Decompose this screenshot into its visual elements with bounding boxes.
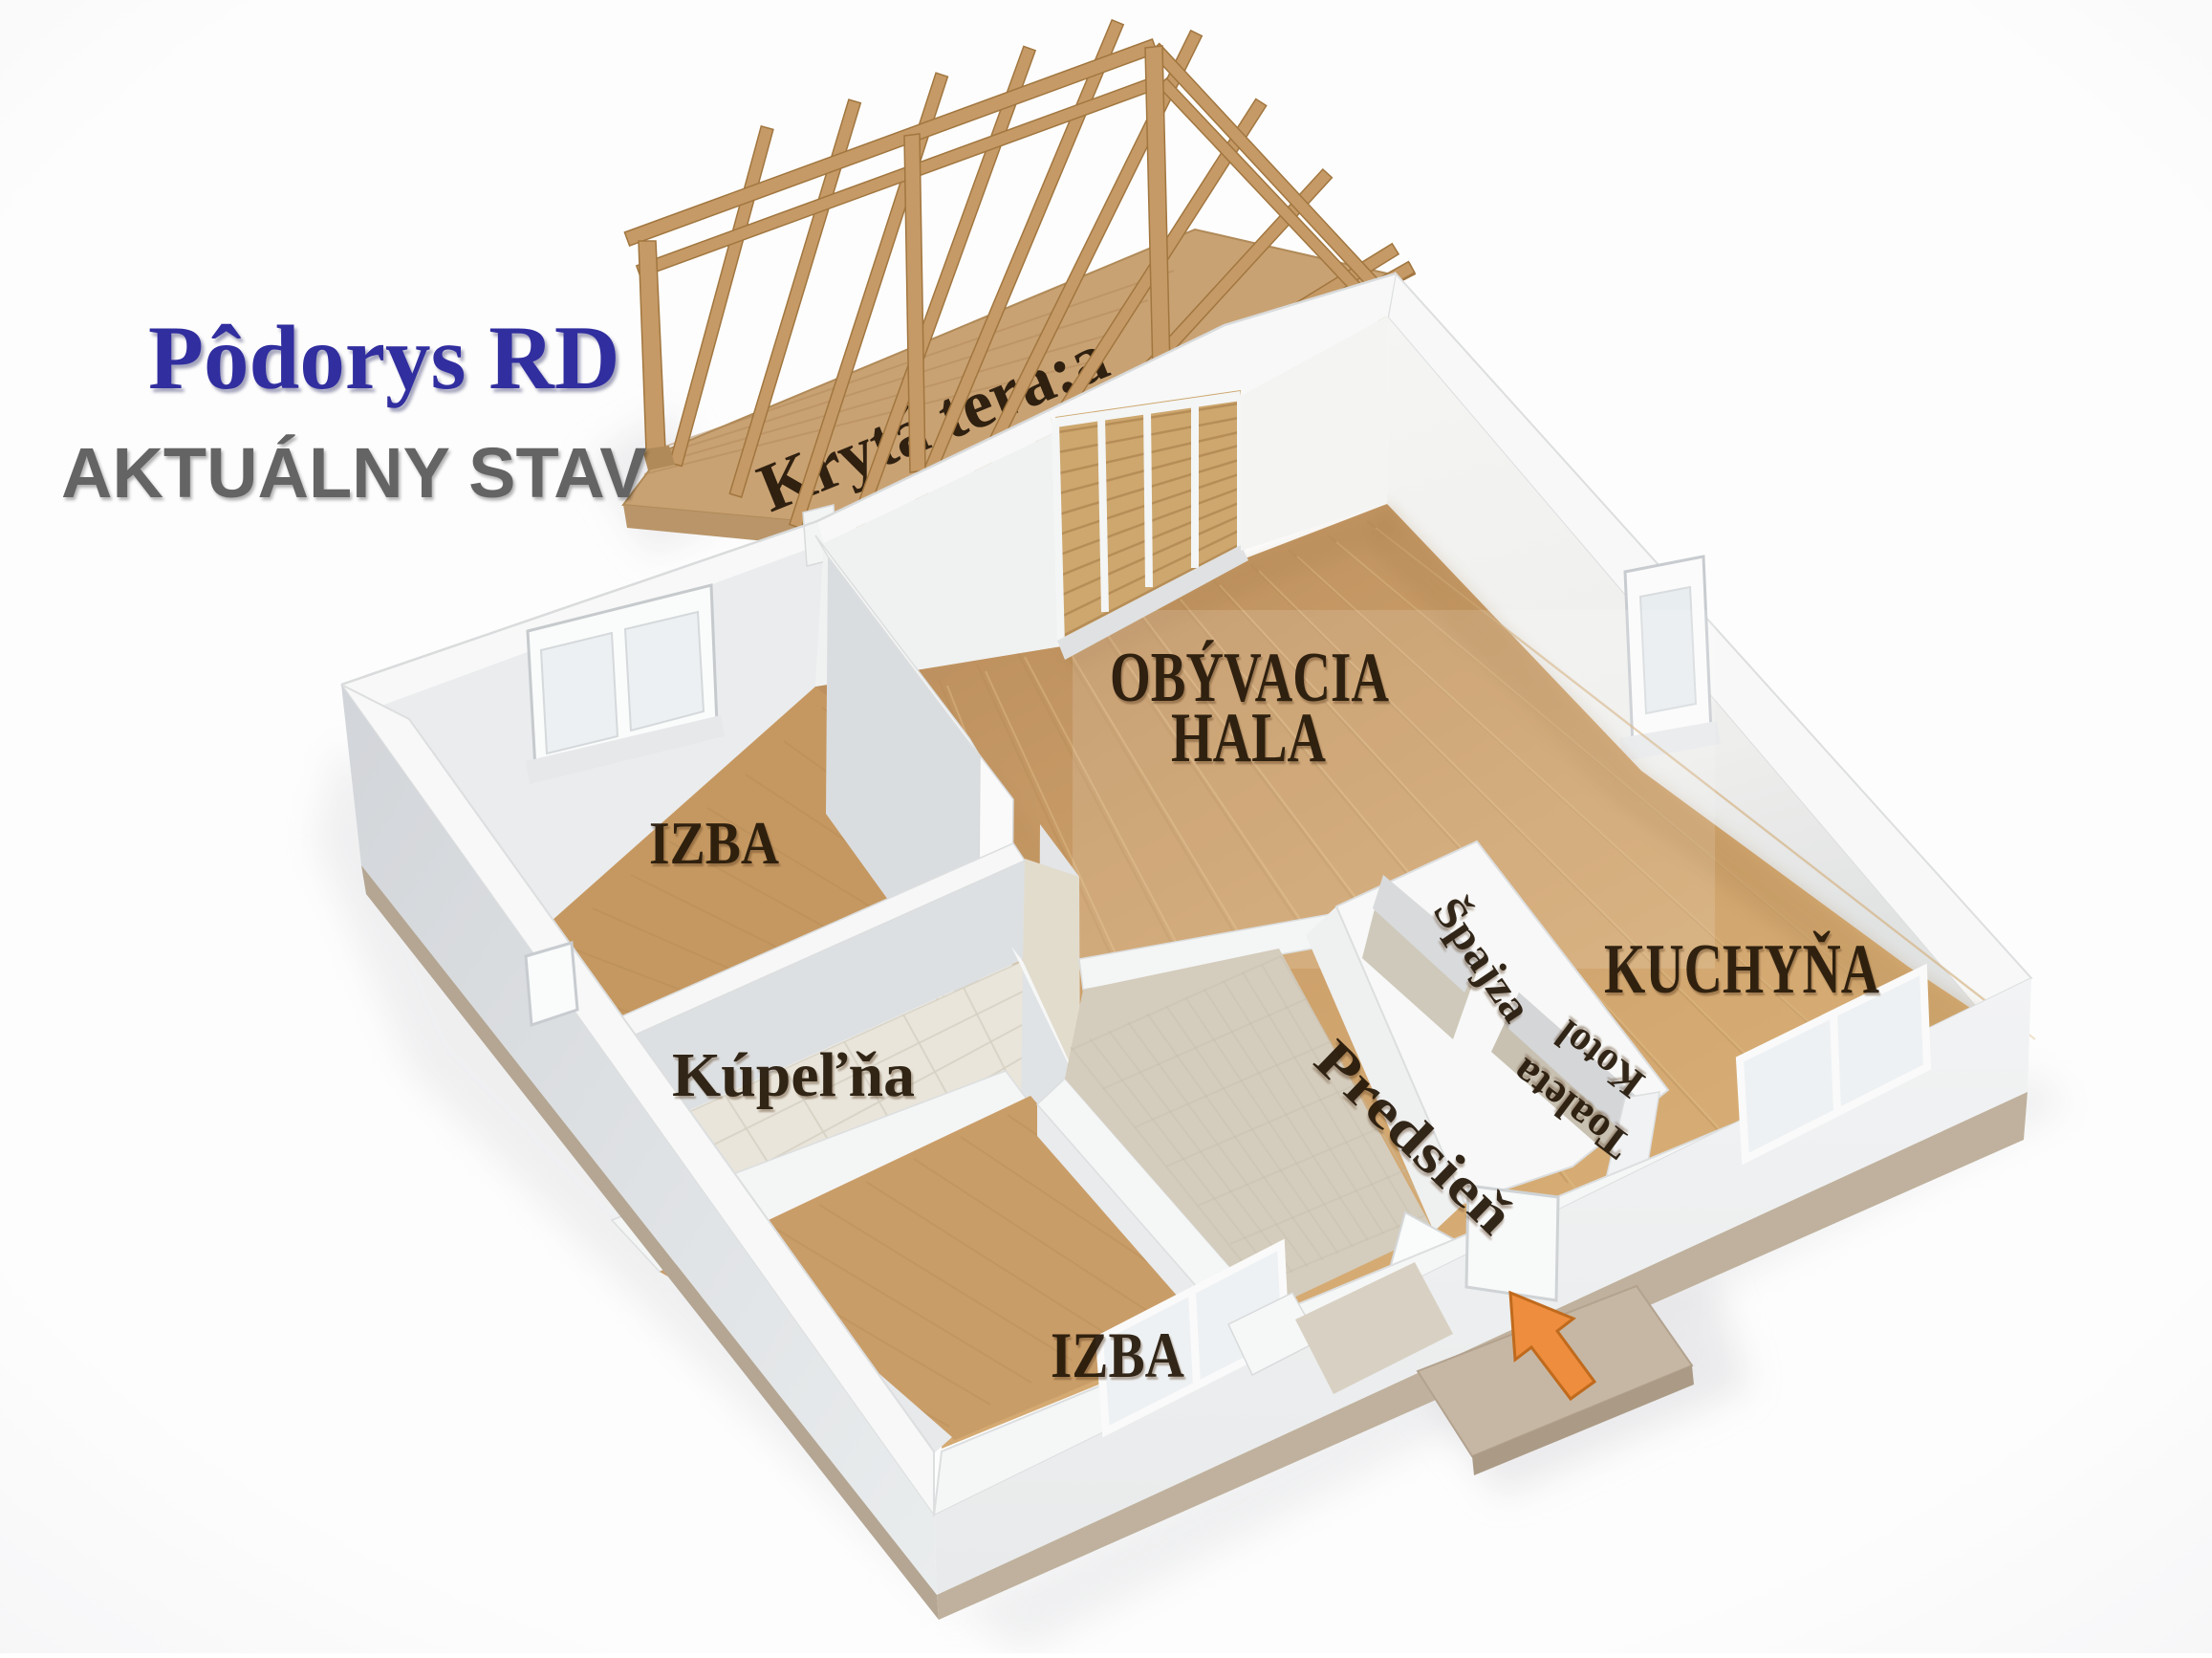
svg-text:KUCHYŇA: KUCHYŇA — [1604, 930, 1879, 1009]
svg-text:AKTUÁLNY STAV: AKTUÁLNY STAV — [61, 433, 647, 513]
svg-text:Pôdorys RD: Pôdorys RD — [148, 307, 619, 408]
svg-text:IZBA: IZBA — [649, 809, 779, 877]
svg-text:HALA: HALA — [1171, 699, 1326, 777]
svg-text:IZBA: IZBA — [1051, 1319, 1184, 1391]
svg-text:Kúpeľňa: Kúpeľňa — [672, 1040, 915, 1110]
